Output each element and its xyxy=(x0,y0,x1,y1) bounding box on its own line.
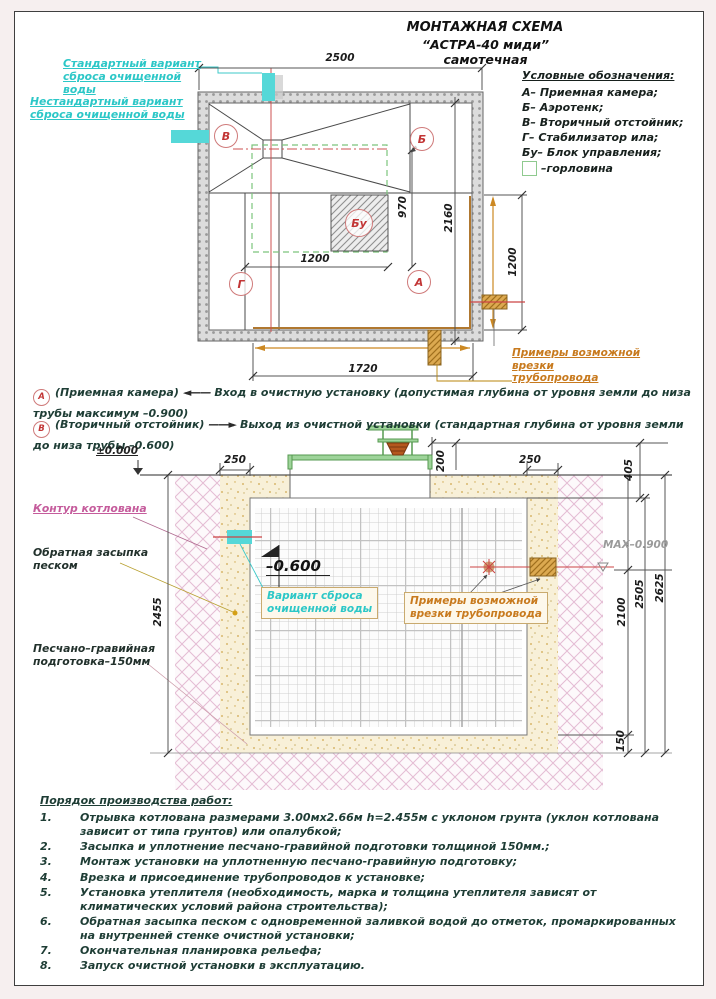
dim-2100: 2100 xyxy=(616,593,628,631)
note-v-name: (Вторичный отстойник) xyxy=(55,418,204,431)
legend-item: А– Приемная камера; xyxy=(522,85,684,100)
legend-item: Б– Аэротенк; xyxy=(522,100,684,115)
marker-bu: Бу xyxy=(345,209,373,237)
procedure-item: 5.Установка утеплителя (необходимость, м… xyxy=(40,886,692,914)
procedure-item: 7.Окончательная планировка рельефа; xyxy=(40,944,692,958)
procedure-item: 8.Запуск очистной установки в эксплуатац… xyxy=(40,959,692,973)
drawing-page: МОНТАЖНАЯ СХЕМА “АСТРА-40 миди” самотечн… xyxy=(0,0,716,999)
dim-405: 405 xyxy=(623,454,635,486)
dim-plan-970: 970 xyxy=(397,191,409,223)
nonstandard-outlet-label: Нестандартный вариант сброса очищенной в… xyxy=(30,96,190,122)
plan-pipe-examples-label: Примеры возможной врезки трубопровода xyxy=(512,347,682,385)
zero-level-mark xyxy=(133,468,143,475)
section-pipe-tap xyxy=(530,558,556,576)
dim-plan-1200v: 1200 xyxy=(507,244,519,280)
note-inlet: А(Приемная камера)◄——Вход в очистную уст… xyxy=(33,385,695,421)
section-view xyxy=(120,426,672,790)
procedure-item: 6.Обратная засыпка песком с одновременно… xyxy=(40,915,692,943)
pit-contour-label: Контур котлована xyxy=(33,503,153,516)
backfill-label: Обратная засыпка песком xyxy=(33,547,153,573)
procedure-list: Порядок производства работ: 1.Отрывка ко… xyxy=(40,794,692,975)
procedure-item: 4.Врезка и присоединение трубопроводов к… xyxy=(40,871,692,885)
dim-2625: 2625 xyxy=(654,569,666,607)
marker-v: В xyxy=(214,124,238,148)
marker-a: А xyxy=(407,270,431,294)
dim-plan-width: 2500 xyxy=(315,52,365,64)
standard-outlet-pipe xyxy=(262,73,275,101)
dim-plan-1720: 1720 xyxy=(340,363,386,375)
nonstandard-outlet-pipe xyxy=(171,130,209,143)
dim-plan-2160: 2160 xyxy=(443,200,455,236)
dim-200: 200 xyxy=(435,448,447,474)
dim-250-right: 250 xyxy=(512,454,548,466)
level-zero-label: ±0.000 xyxy=(96,445,146,458)
legend-neck-label: –горловина xyxy=(541,161,613,176)
level-outlet-label: –0.600 xyxy=(266,557,330,576)
title-line2: “АСТРА-40 миди” самотечная xyxy=(378,37,593,67)
tank-neck xyxy=(290,460,430,498)
procedure-heading: Порядок производства работ: xyxy=(40,794,692,807)
procedure-item: 2.Засыпка и уплотнение песчано-гравийной… xyxy=(40,840,692,854)
dim-2505: 2505 xyxy=(634,575,646,613)
marker-b: Б xyxy=(410,127,434,151)
procedure-item: 1.Отрывка котлована размерами 3.00мх2.66… xyxy=(40,811,692,839)
note-marker-v: В xyxy=(33,421,50,438)
arrow-right-icon: ——► xyxy=(208,418,235,431)
pipe-tap-bottom xyxy=(428,330,441,365)
pipe-tap-crosshair xyxy=(481,559,497,575)
marker-g: Г xyxy=(229,272,253,296)
level-max-label: MAX–0.900 xyxy=(603,539,683,552)
legend-heading: Условные обозначения: xyxy=(522,68,684,83)
note-a-name: (Приемная камера) xyxy=(55,386,179,399)
legend-item: В– Вторичный отстойник; xyxy=(522,115,684,130)
note-marker-a: А xyxy=(33,389,50,406)
outlet-variant-box: Вариант сброса очищенной воды xyxy=(261,587,378,619)
dim-plan-1200h: 1200 xyxy=(293,253,337,265)
legend: Условные обозначения: А– Приемная камера… xyxy=(522,68,684,176)
section-pipe-examples-box: Примеры возможной врезки трубопровода xyxy=(404,592,548,624)
procedure-item: 3.Монтаж установки на уплотненную песчан… xyxy=(40,855,692,869)
dim-2455: 2455 xyxy=(152,593,164,631)
legend-item: Г– Стабилизатор ила; xyxy=(522,130,684,145)
legend-item: Бу– Блок управления; xyxy=(522,145,684,160)
title-line1: МОНТАЖНАЯ СХЕМА xyxy=(390,20,580,36)
standard-outlet-label: Стандартный вариант сброса очищенной вод… xyxy=(63,58,203,97)
bedding-label: Песчано–гравийная подготовка–150мм xyxy=(33,643,163,669)
dim-150: 150 xyxy=(615,726,627,756)
arrow-left-icon: ◄—— xyxy=(183,386,210,399)
neck-legend-icon xyxy=(522,161,537,176)
dim-250-left: 250 xyxy=(217,454,253,466)
